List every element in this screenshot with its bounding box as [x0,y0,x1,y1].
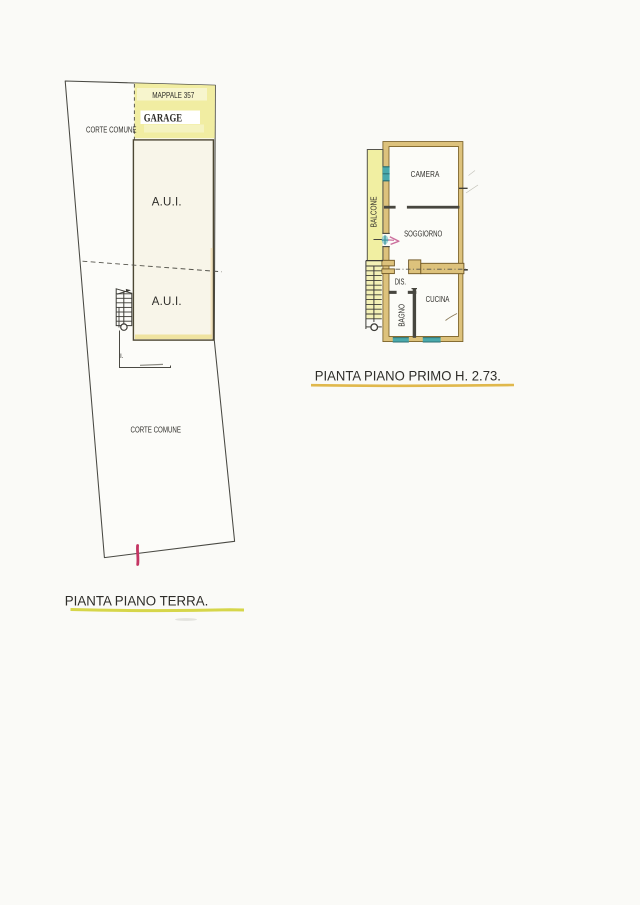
svg-text:CORTE COMUNE: CORTE COMUNE [131,426,182,435]
svg-text:GARAGE: GARAGE [144,112,182,125]
svg-text:BALCONE: BALCONE [369,196,379,227]
svg-text:A.U.I.: A.U.I. [152,296,182,308]
svg-text:CORTE COMUNE: CORTE COMUNE [86,126,137,135]
svg-text:BAGNO: BAGNO [397,304,407,327]
svg-text:DIS.: DIS. [395,279,406,287]
svg-text:I.: I. [120,353,124,360]
svg-text:MAPPALE 357: MAPPALE 357 [152,90,194,100]
svg-text:A.U.I.: A.U.I. [152,196,182,208]
svg-text:PIANTA PIANO TERRA.: PIANTA PIANO TERRA. [65,593,208,608]
svg-text:CUCINA: CUCINA [426,296,450,305]
svg-text:CAMERA: CAMERA [411,170,440,180]
svg-text:PIANTA PIANO PRIMO H. 2.73.: PIANTA PIANO PRIMO H. 2.73. [315,368,501,384]
svg-text:SOGGIORNO: SOGGIORNO [404,230,443,239]
